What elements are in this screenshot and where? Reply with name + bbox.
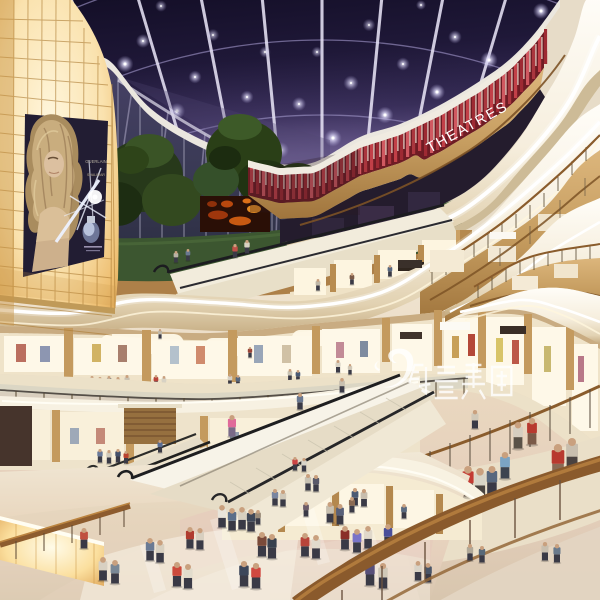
svg-text:SHALIMAR: SHALIMAR xyxy=(87,173,105,177)
svg-text:GUERLAIN: GUERLAIN xyxy=(85,159,106,164)
